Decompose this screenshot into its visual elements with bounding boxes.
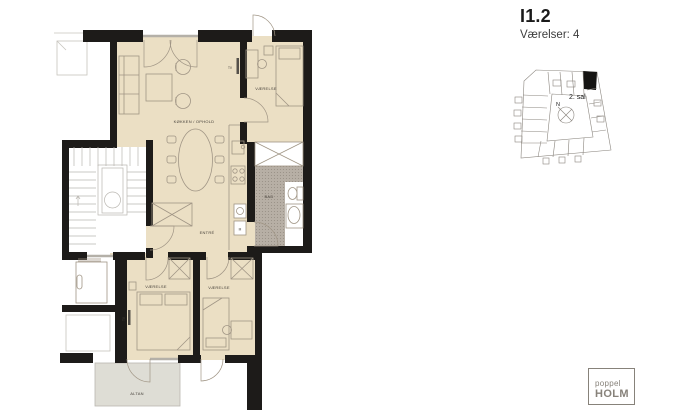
brand-logo-line1: poppel bbox=[595, 380, 632, 388]
room-label-bathroom: BAD bbox=[265, 194, 274, 199]
brand-logo: poppel HOLM bbox=[588, 368, 635, 405]
room-label-bedroom-right: VÆRELSE bbox=[208, 285, 230, 290]
washer-label: M bbox=[239, 228, 242, 232]
apartment-floor-areas bbox=[69, 36, 312, 406]
site-plan: 2. sal N bbox=[514, 70, 611, 164]
room-label-balcony: ALTAN bbox=[130, 391, 144, 396]
floorplan-page: I1.2 Værelser: 4 bbox=[0, 0, 687, 411]
site-plan-unit-highlight bbox=[583, 71, 597, 90]
north-compass-icon bbox=[558, 107, 574, 123]
elevator bbox=[76, 259, 107, 303]
floorplan-drawing: KØKKEN / OPHOLD VÆRELSE VÆRELSE VÆRELSE … bbox=[0, 0, 687, 411]
room-label-bedroom-top: VÆRELSE bbox=[255, 86, 277, 91]
balcony-floor bbox=[95, 363, 180, 406]
room-label-kitchen-living: KØKKEN / OPHOLD bbox=[174, 119, 215, 124]
brand-logo-line2: HOLM bbox=[595, 389, 632, 400]
site-plan-floor-label: 2. sal bbox=[569, 94, 586, 101]
room-label-bedroom-left: VÆRELSE bbox=[145, 284, 167, 289]
room-label-entry: ENTRÉ bbox=[200, 230, 215, 235]
north-label: N bbox=[556, 102, 560, 108]
